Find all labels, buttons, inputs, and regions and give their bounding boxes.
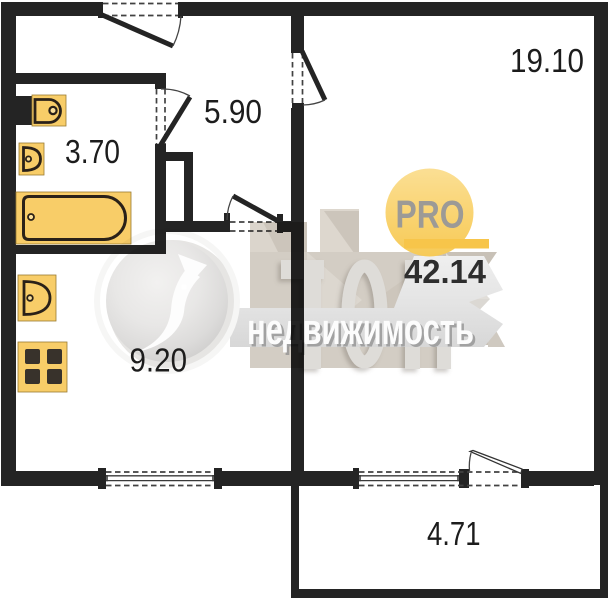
svg-text:9.20: 9.20 <box>130 342 188 379</box>
svg-text:PRO: PRO <box>396 194 465 237</box>
svg-text:42.14: 42.14 <box>404 253 487 290</box>
svg-text:3.70: 3.70 <box>65 133 120 170</box>
svg-text:19.10: 19.10 <box>510 42 584 79</box>
svg-text:недвижимость: недвижимость <box>247 305 474 354</box>
svg-text:4.71: 4.71 <box>427 515 481 552</box>
svg-text:5.90: 5.90 <box>204 93 262 130</box>
